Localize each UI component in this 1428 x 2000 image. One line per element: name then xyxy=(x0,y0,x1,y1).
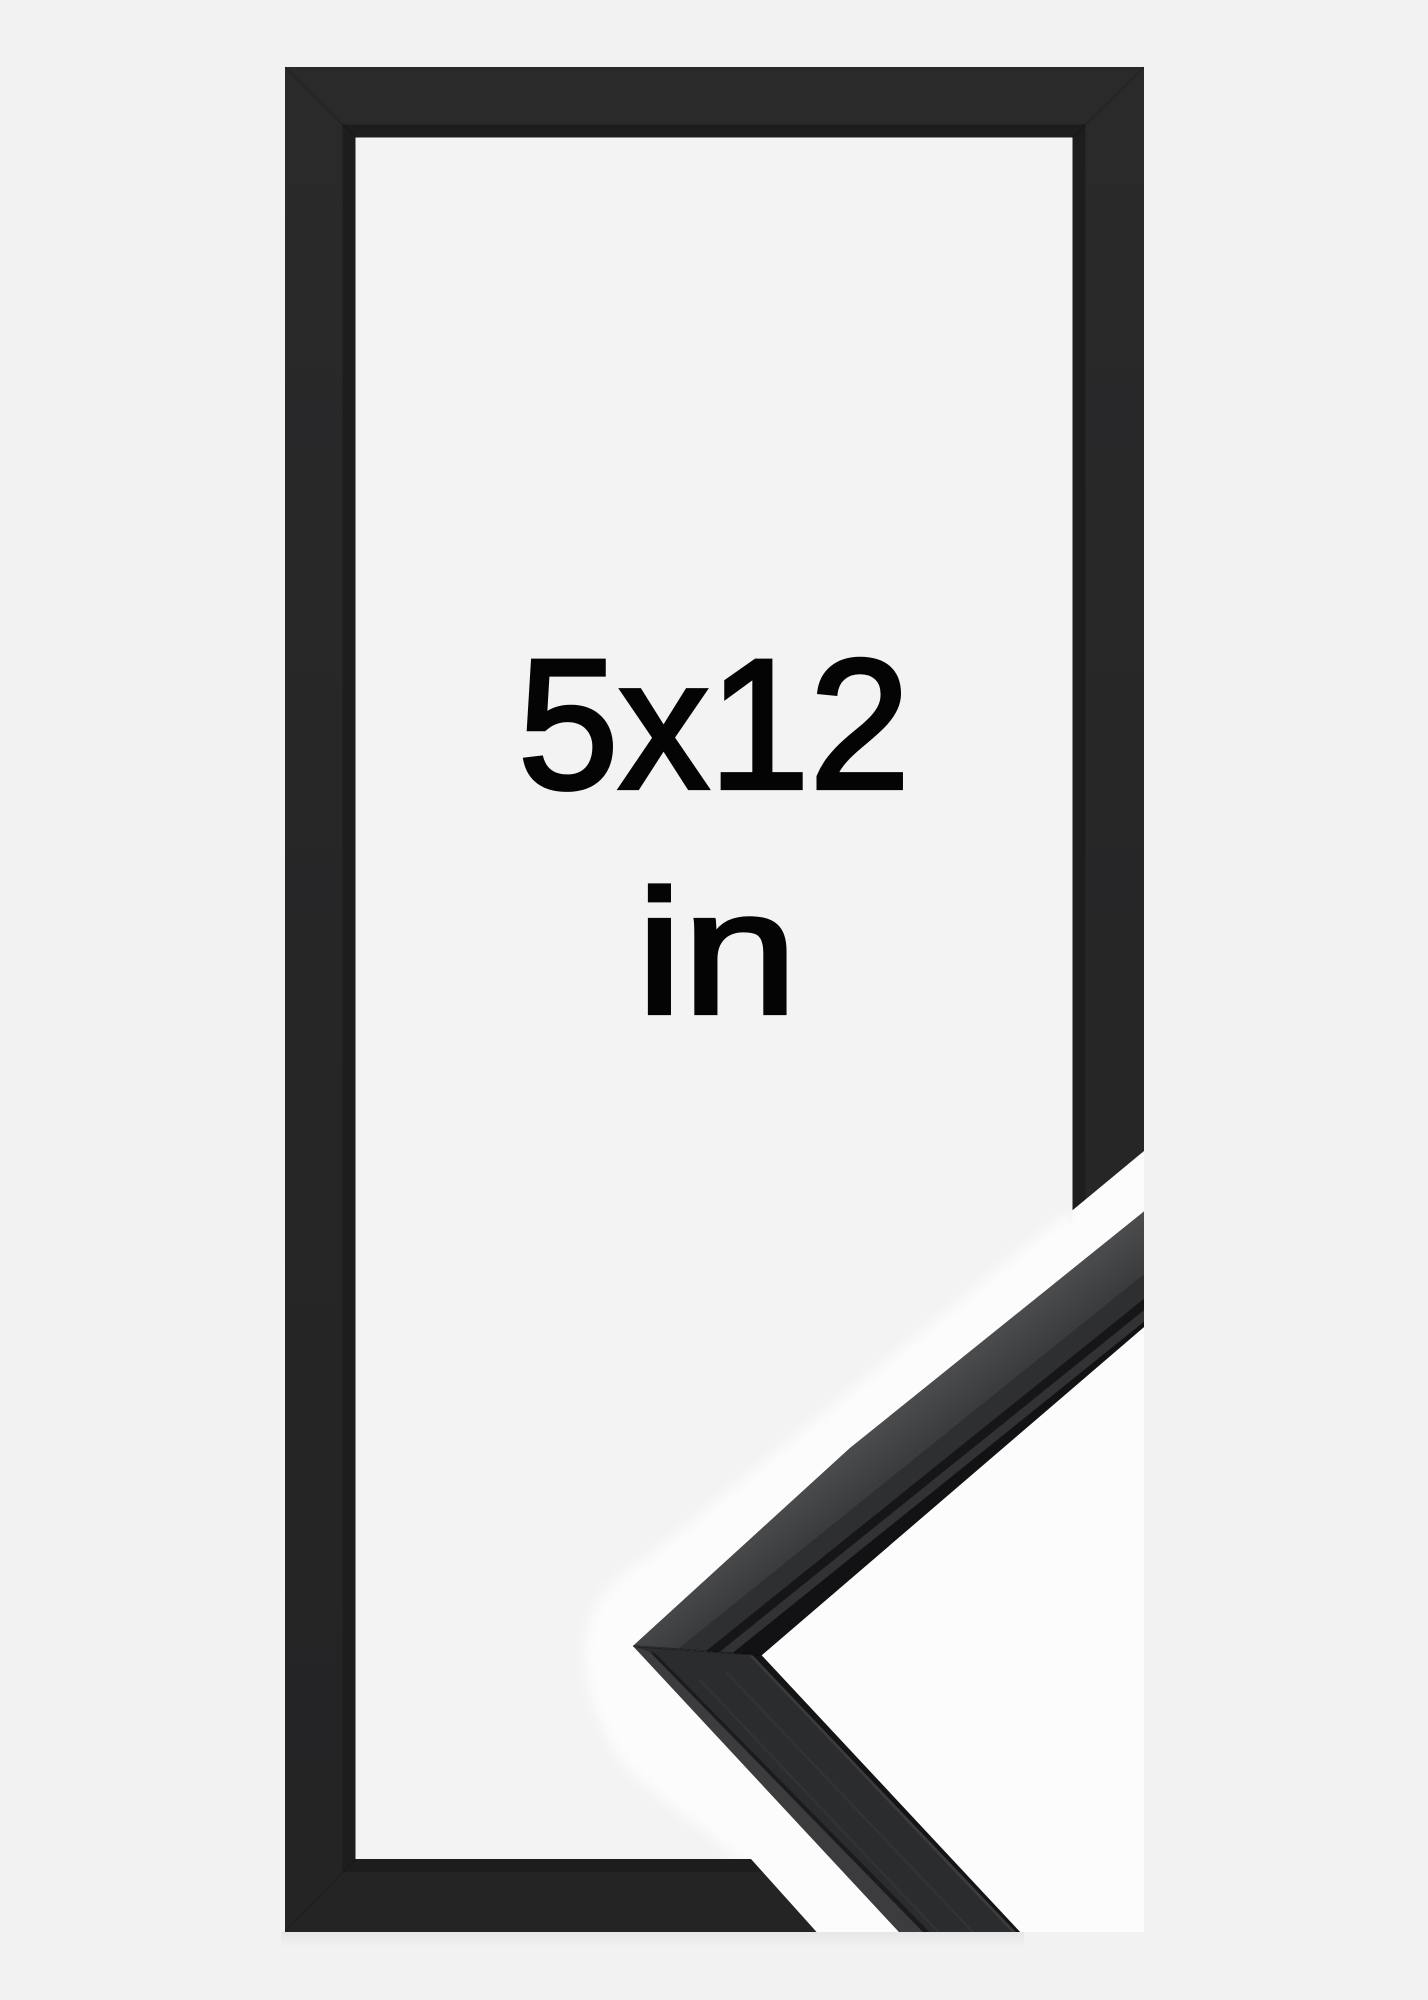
svg-text:5x12: 5x12 xyxy=(518,622,910,828)
svg-text:in: in xyxy=(637,855,798,1051)
